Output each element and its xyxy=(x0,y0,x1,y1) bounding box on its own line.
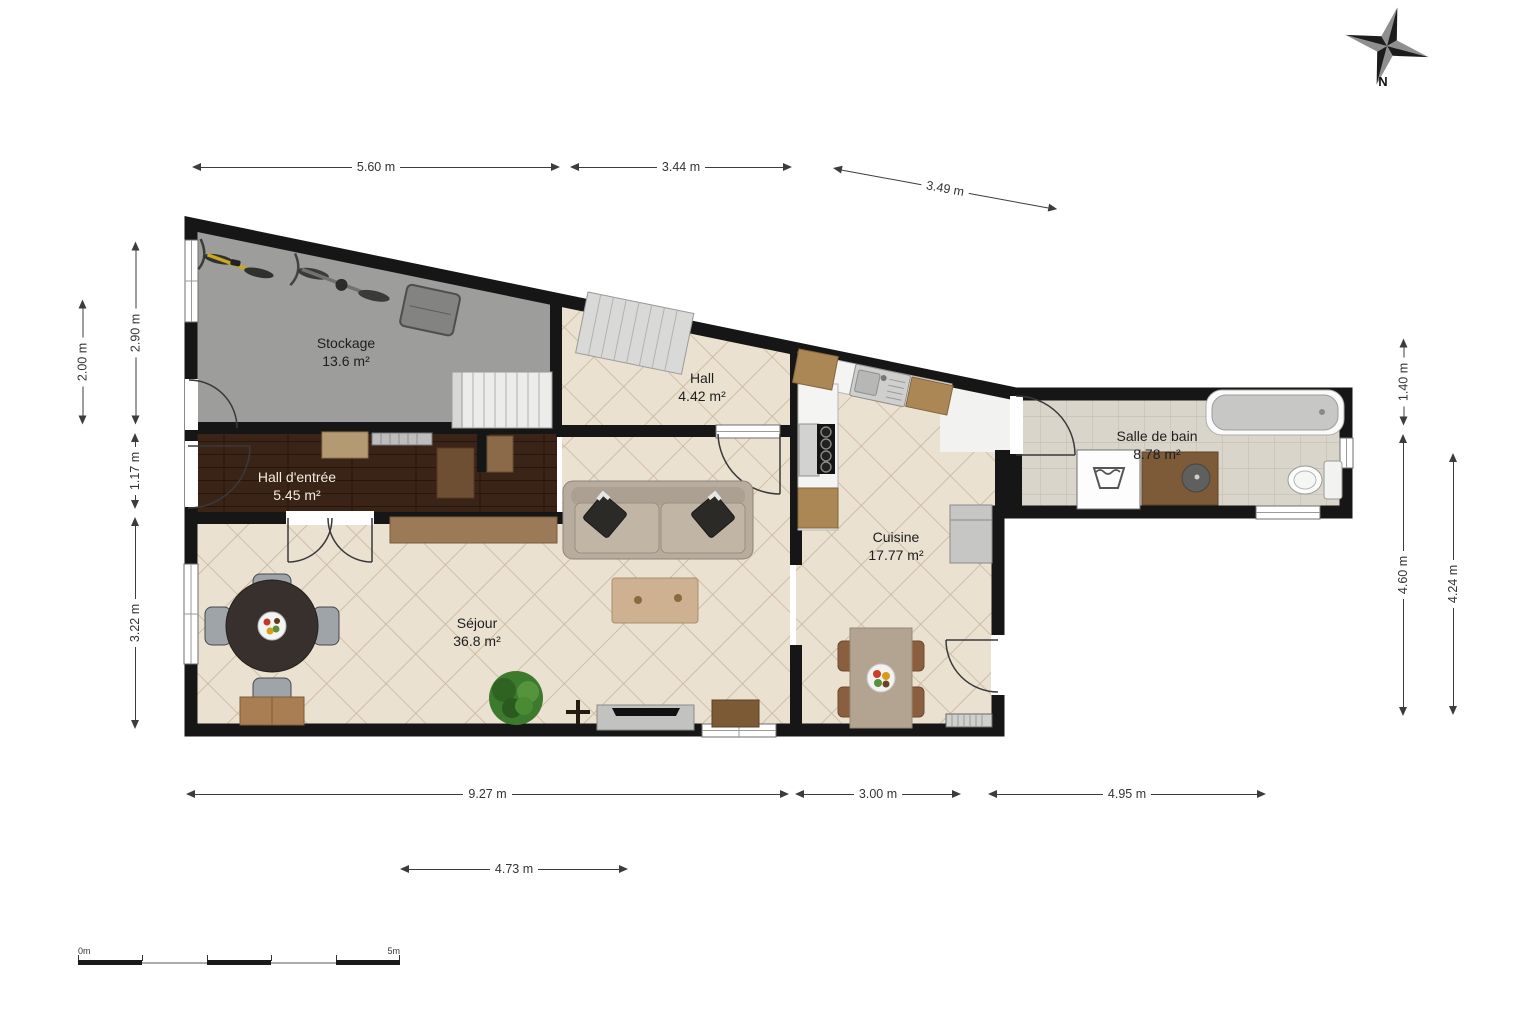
floorplan-page: Stockage 13.6 m² Hall 4.42 m² Hall d'ent… xyxy=(0,0,1536,1021)
dimension-left-3: 1.17 m xyxy=(128,433,142,509)
dimension-top-1: 5.60 m xyxy=(192,160,560,174)
entree-bench xyxy=(322,432,368,458)
room-label-hall: Hall 4.42 m² xyxy=(678,369,725,405)
staircase-stockage xyxy=(452,372,552,428)
sofa xyxy=(563,481,753,559)
entree-doormat xyxy=(437,448,474,498)
room-name: Hall d'entrée xyxy=(258,468,336,486)
dimension-bottom-1: 9.27 m xyxy=(186,787,789,801)
dimension-right-1: 1.40 m xyxy=(1397,339,1411,426)
dimension-left-2: 2.90 m xyxy=(129,242,143,425)
dim-label: 4.95 m xyxy=(1108,787,1146,801)
dim-label: 4.73 m xyxy=(495,862,533,876)
room-area: 8.78 m² xyxy=(1117,445,1198,463)
dim-label: 2.00 m xyxy=(76,343,90,381)
room-name: Cuisine xyxy=(868,528,923,546)
entree-radiator xyxy=(372,433,432,445)
dim-label: 4.60 m xyxy=(1396,556,1410,594)
room-label-sejour: Séjour 36.8 m² xyxy=(453,614,500,650)
dim-label: 9.27 m xyxy=(468,787,506,801)
window-hall-bottom xyxy=(716,425,780,438)
fruit-bowl xyxy=(867,664,895,692)
dimension-bottom-2: 3.00 m xyxy=(795,787,961,801)
room-area: 4.42 m² xyxy=(678,387,725,405)
kitchen-cabinet xyxy=(798,488,838,528)
dimension-top-2: 3.44 m xyxy=(570,160,792,174)
scale-bar: 0m 5m xyxy=(78,946,400,974)
scale-start-label: 0m xyxy=(78,946,91,956)
room-area: 17.77 m² xyxy=(868,546,923,564)
cutting-board xyxy=(793,349,839,390)
tv xyxy=(612,708,680,716)
dim-label: 2.90 m xyxy=(129,314,143,352)
tv-stand xyxy=(597,705,694,730)
compass-north-label: N xyxy=(1371,74,1395,89)
dim-label: 3.00 m xyxy=(859,787,897,801)
wall-block-kitchen-bath xyxy=(995,450,1022,518)
dimension-left-4: 3.22 m xyxy=(128,517,142,729)
fridge xyxy=(950,505,992,563)
dimension-left-1: 2.00 m xyxy=(76,300,90,425)
window-sejour-left xyxy=(184,564,198,664)
kitchen-dining-set xyxy=(838,628,924,728)
stove xyxy=(817,424,835,474)
dimension-bottom-4: 4.73 m xyxy=(400,862,628,876)
dimension-bottom-3: 4.95 m xyxy=(988,787,1266,801)
room-area: 5.45 m² xyxy=(258,486,336,504)
window-bath-bottom xyxy=(1256,506,1320,519)
dimension-right-3: 4.24 m xyxy=(1446,453,1460,715)
room-name: Hall xyxy=(678,369,725,387)
dim-label: 3.22 m xyxy=(128,604,142,642)
room-label-cuisine: Cuisine 17.77 m² xyxy=(868,528,923,564)
coffee-table xyxy=(612,578,698,623)
bathtub xyxy=(1206,390,1344,435)
dim-label: 1.40 m xyxy=(1397,363,1411,401)
window-stockage-left xyxy=(185,240,198,322)
room-label-hall-entree: Hall d'entrée 5.45 m² xyxy=(258,468,336,504)
room-label-stockage: Stockage 13.6 m² xyxy=(317,334,375,370)
room-name: Séjour xyxy=(453,614,500,632)
dim-label: 4.24 m xyxy=(1446,565,1460,603)
sideboard xyxy=(240,697,304,725)
room-name: Salle de bain xyxy=(1117,427,1198,445)
room-area: 13.6 m² xyxy=(317,352,375,370)
floor-plan xyxy=(0,0,1536,1021)
appliance xyxy=(799,424,819,476)
dim-label: 1.17 m xyxy=(128,452,142,490)
dimension-right-2: 4.60 m xyxy=(1396,434,1410,716)
room-area: 36.8 m² xyxy=(453,632,500,650)
plant xyxy=(489,671,543,725)
side-table xyxy=(487,436,513,472)
dim-label: 5.60 m xyxy=(357,160,395,174)
room-name: Stockage xyxy=(317,334,375,352)
sejour-console xyxy=(390,517,557,543)
dim-label: 3.44 m xyxy=(662,160,700,174)
room-label-salle-de-bain: Salle de bain 8.78 m² xyxy=(1117,427,1198,463)
fruit-plate xyxy=(258,612,286,640)
cabinet xyxy=(712,700,759,727)
kitchen-radiator xyxy=(946,714,992,727)
